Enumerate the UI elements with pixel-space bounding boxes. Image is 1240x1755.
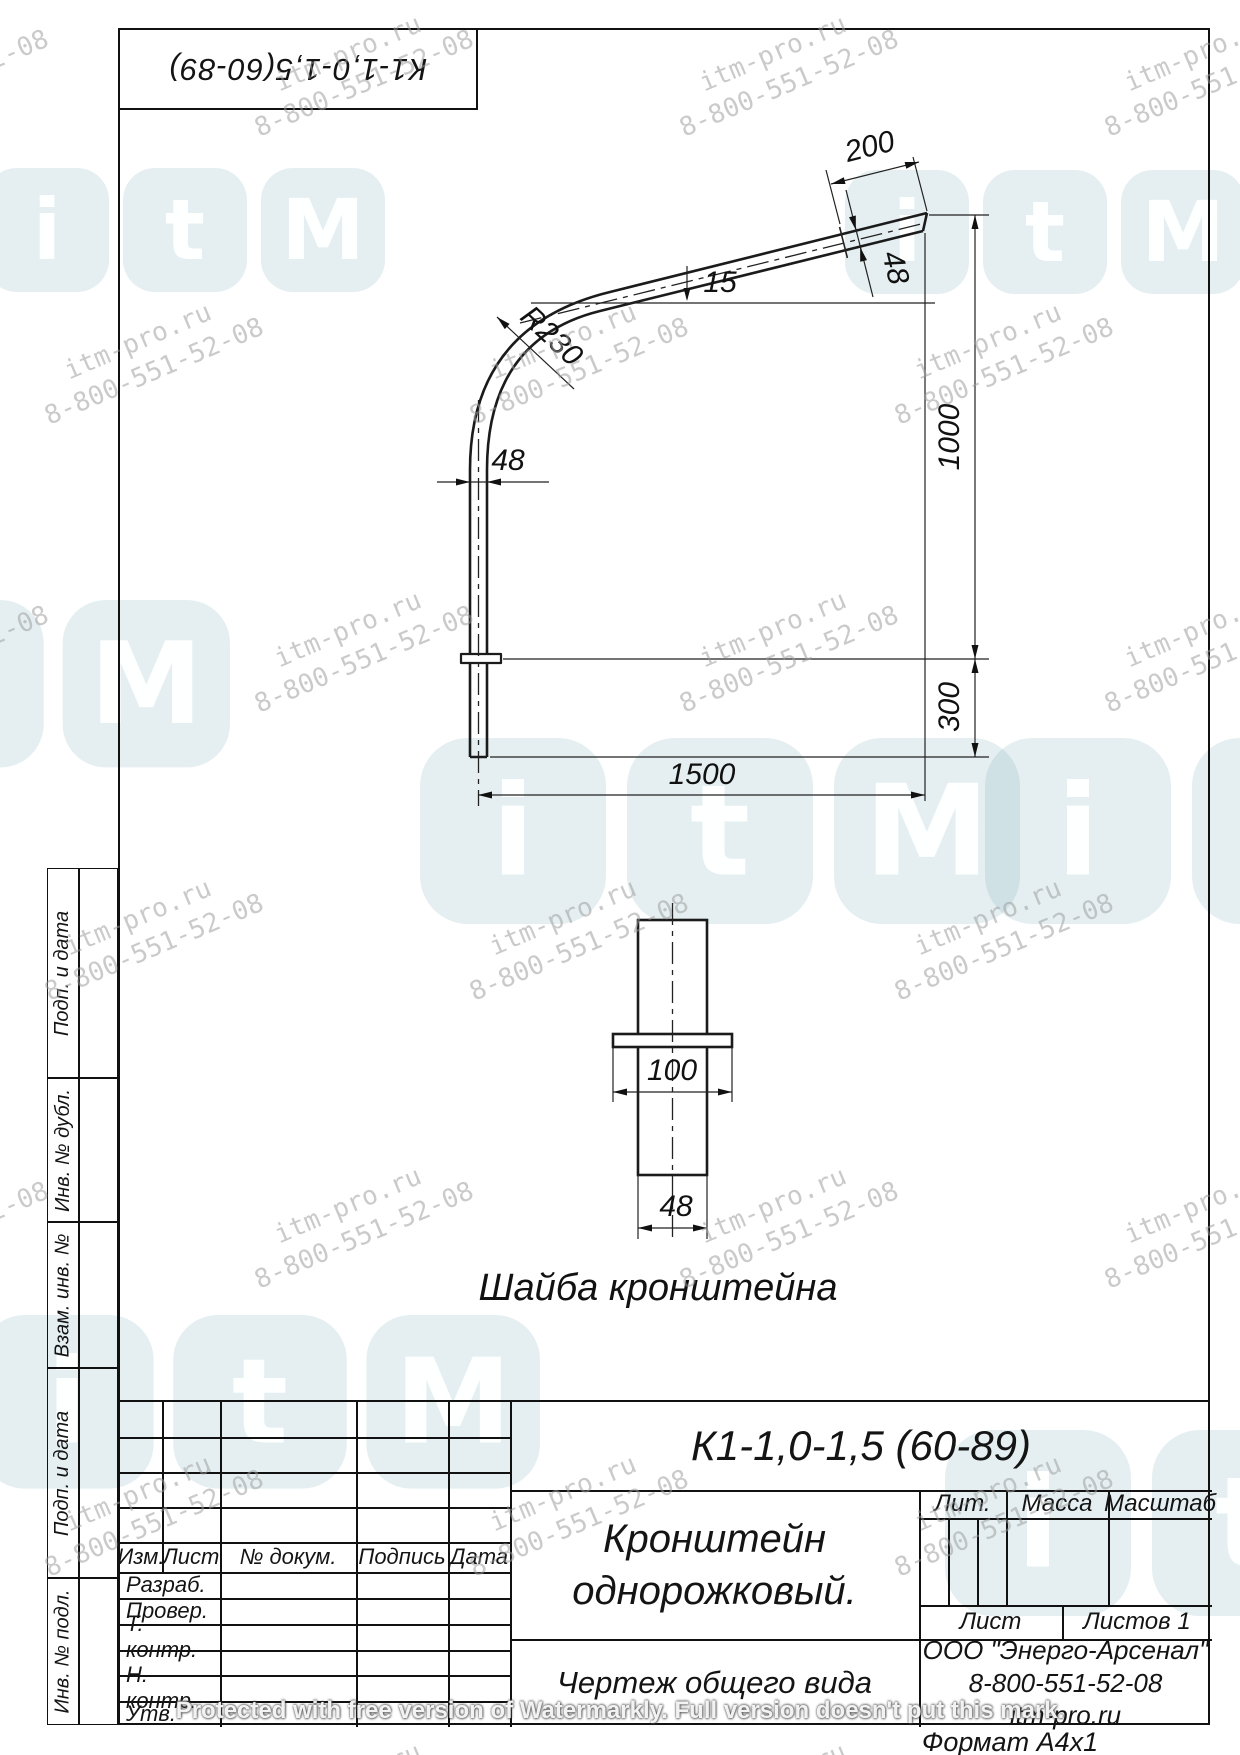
col-list: Лист <box>162 1542 220 1572</box>
company-name: ООО "Энерго-Арсенал" <box>923 1634 1209 1667</box>
part-name: Кронштейн однорожковый. <box>510 1490 919 1639</box>
rotated-designation-box: К1-1,0-1,5(60-89) <box>118 28 478 110</box>
grid-line <box>120 1507 510 1509</box>
designation: К1-1,0-1,5 (60-89) <box>510 1402 1212 1490</box>
stamp-label: Взам. инв. № <box>52 1233 75 1357</box>
drawing-sheet: itMitMitMitMitMitMitM <box>0 0 1240 1755</box>
grid-line <box>919 1518 1212 1520</box>
col-data: Дата <box>448 1542 510 1572</box>
stamp-label: Инв. № дубл. <box>52 1089 75 1212</box>
stamp-podp-data-1: Подп. и дата <box>47 868 118 1078</box>
stamp-label: Инв. № подл. <box>52 1589 75 1713</box>
margin-stamps: Подп. и дата Инв. № дубл. Взам. инв. № П… <box>47 868 118 1725</box>
company-phone: 8-800-551-52-08 <box>969 1667 1163 1700</box>
format-label: Формат А4х1 <box>850 1727 1170 1755</box>
watermarkly-notice: Protected with free version of Watermark… <box>0 1697 1240 1725</box>
row-razrab: Разраб. <box>120 1572 220 1598</box>
stamp-podp-data-2: Подп. и дата <box>47 1368 118 1578</box>
stamp-label: Подп. и дата <box>52 910 75 1035</box>
stamp-inv-dubl: Инв. № дубл. <box>47 1078 118 1222</box>
lit-label: Лит. <box>919 1490 1006 1518</box>
col-podpis: Подпись <box>356 1542 448 1572</box>
title-block: Изм. Лист № докум. Подпись Дата Разраб. … <box>118 1400 1210 1725</box>
col-izm: Изм. <box>120 1542 162 1572</box>
grid-line <box>120 1437 510 1439</box>
grid-line <box>948 1518 950 1605</box>
mass-label: Масса <box>1006 1490 1108 1518</box>
col-dokum: № докум. <box>220 1542 356 1572</box>
scale-label: Масштаб <box>1108 1490 1212 1518</box>
grid-line <box>120 1472 510 1474</box>
stamp-label: Подп. и дата <box>52 1410 75 1535</box>
row-tkontr: Т. контр. <box>120 1624 220 1650</box>
part-name-line2: однорожковый. <box>572 1565 857 1617</box>
part-name-line1: Кронштейн <box>603 1513 826 1565</box>
stamp-vzam-inv: Взам. инв. № <box>47 1222 118 1368</box>
rotated-designation: К1-1,0-1,5(60-89) <box>168 51 427 87</box>
grid-line <box>977 1518 979 1605</box>
